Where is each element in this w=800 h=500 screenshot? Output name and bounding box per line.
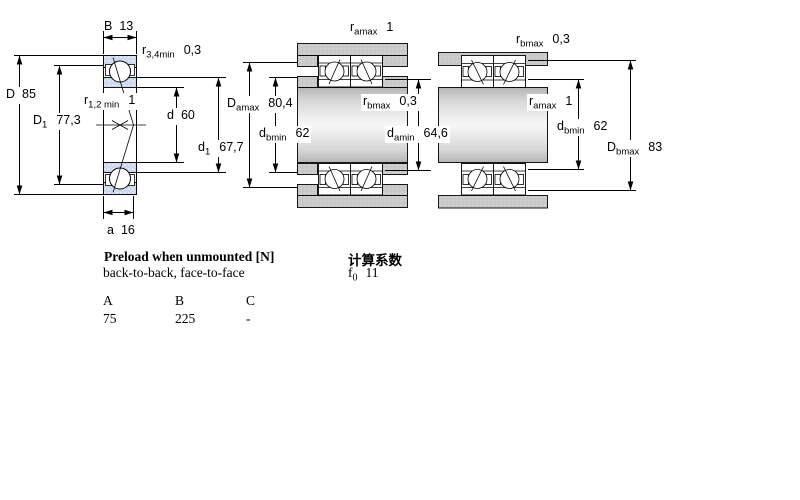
preload-col-B: B <box>175 293 184 309</box>
preload-col-C: C <box>246 293 255 309</box>
housing-shoulder <box>298 185 318 196</box>
dim-label-r12min: r1,2 min1 <box>82 93 137 110</box>
f0-factor: f011 <box>348 265 379 284</box>
preload-value-B: 225 <box>175 311 195 327</box>
dim-label-ramax-mid: ramax1 <box>350 20 393 37</box>
mounted-pair-drawing-b <box>439 53 548 209</box>
dim-label-Damax: Damax80,4 <box>225 96 295 113</box>
preload-subtitle: back-to-back, face-to-face <box>103 265 245 281</box>
dim-label-D: D85 <box>4 87 38 104</box>
ball-bottom <box>110 168 131 189</box>
dim-label-rbmax-mid: rbmax0,3 <box>361 94 419 111</box>
dim-label-Dbmax: Dbmax83 <box>605 140 664 157</box>
shaft-shoulder <box>298 77 318 88</box>
dim-label-dbmin-mid: dbmin62 <box>257 126 311 143</box>
single-bearing-drawing <box>96 56 146 195</box>
dim-label-damin: damin64,6 <box>385 126 450 143</box>
dim-label-B: B13 <box>104 19 133 36</box>
housing-shoulder <box>383 56 408 67</box>
dim-label-r34min: r3,4min0,3 <box>142 43 201 60</box>
ball-top <box>110 61 131 82</box>
bearing-datasheet-figure: B13 r3,4min0,3 D85 D177,3 r1,2 min1 d60 … <box>0 0 800 500</box>
dim-label-ramax-right: ramax1 <box>527 94 574 111</box>
housing-shoulder <box>298 56 318 67</box>
dim-label-d: d60 <box>165 108 197 125</box>
preload-title: Preload when unmounted [N] <box>104 249 274 265</box>
preload-value-C: - <box>246 311 251 327</box>
preload-value-A: 75 <box>103 311 117 327</box>
dim-label-rbmax-right: rbmax0,3 <box>516 32 570 49</box>
dim-label-dbmin-right: dbmin62 <box>555 119 609 136</box>
housing-strip-top <box>298 44 408 56</box>
dim-label-a: a16 <box>107 223 135 240</box>
shaft-shoulder <box>298 164 318 175</box>
housing-shoulder <box>383 185 408 196</box>
dim-label-d1: d167,7 <box>196 140 246 157</box>
housing-strip-bottom <box>298 196 408 208</box>
dim-label-D1: D177,3 <box>31 113 83 130</box>
shaft-shoulder <box>383 77 408 88</box>
preload-col-A: A <box>103 293 113 309</box>
shaft-shoulder <box>383 164 408 175</box>
housing-strip-bottom <box>439 196 548 209</box>
